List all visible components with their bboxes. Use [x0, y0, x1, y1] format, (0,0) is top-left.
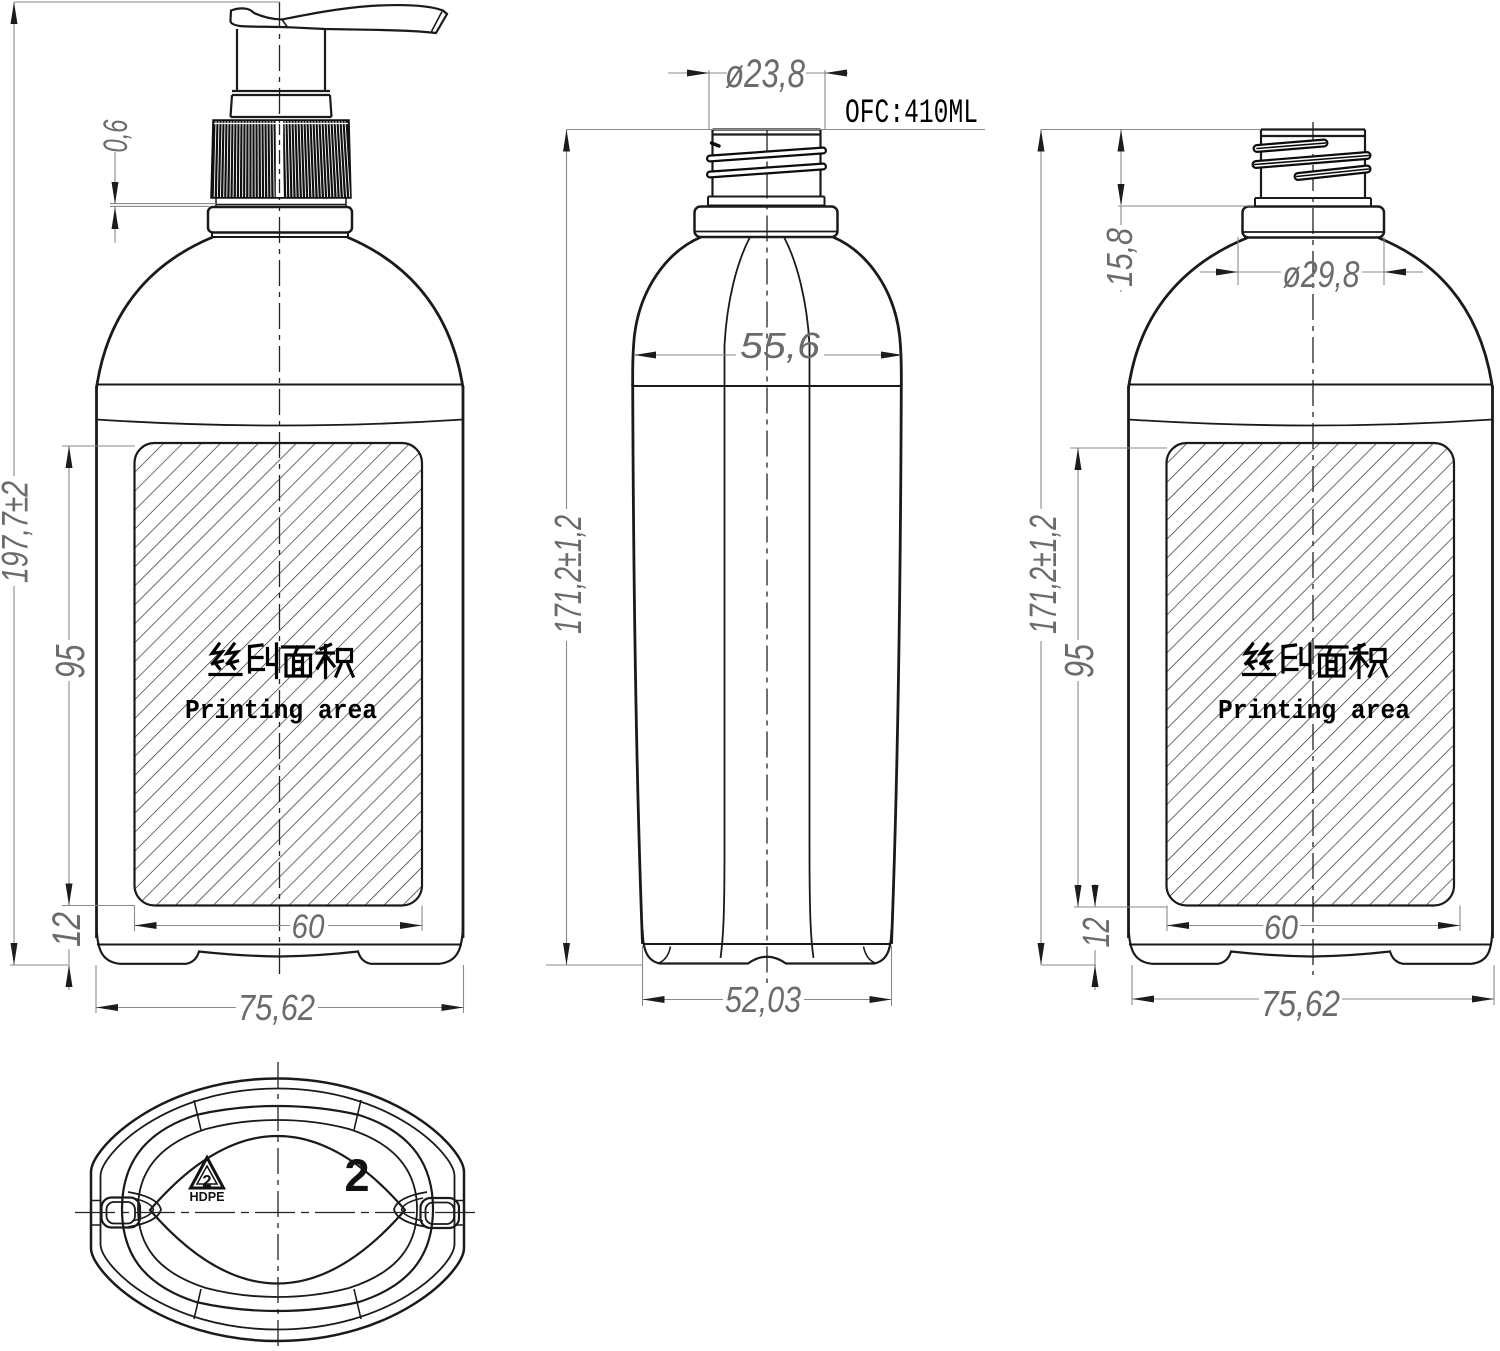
svg-text:ø29,8: ø29,8 — [1283, 254, 1360, 295]
svg-text:Printing area: Printing area — [185, 697, 377, 727]
svg-text:HDPE: HDPE — [190, 1190, 225, 1204]
svg-text:52,03: 52,03 — [725, 979, 801, 1020]
svg-text:95: 95 — [1056, 644, 1102, 678]
svg-text:197,7±2: 197,7±2 — [0, 481, 36, 583]
svg-text:75,62: 75,62 — [1261, 983, 1340, 1024]
svg-text:2: 2 — [344, 1150, 369, 1201]
svg-text:12: 12 — [1076, 918, 1118, 948]
svg-text:Printing area: Printing area — [1218, 697, 1410, 727]
svg-text:12: 12 — [45, 912, 89, 947]
svg-text:2: 2 — [202, 1173, 211, 1191]
svg-text:60: 60 — [1264, 909, 1298, 947]
svg-text:171,2±1,2: 171,2±1,2 — [1023, 515, 1065, 634]
svg-text:0,6: 0,6 — [97, 119, 135, 152]
svg-text:60: 60 — [292, 908, 325, 946]
svg-text:171,2±1,2: 171,2±1,2 — [548, 515, 590, 634]
svg-text:ø23,8: ø23,8 — [725, 52, 806, 96]
svg-text:75,62: 75,62 — [238, 987, 315, 1028]
svg-text:15,8: 15,8 — [1099, 228, 1140, 287]
svg-text:55,6: 55,6 — [740, 325, 821, 366]
svg-text:95: 95 — [47, 644, 93, 678]
svg-text:OFC:410ML: OFC:410ML — [845, 95, 978, 133]
